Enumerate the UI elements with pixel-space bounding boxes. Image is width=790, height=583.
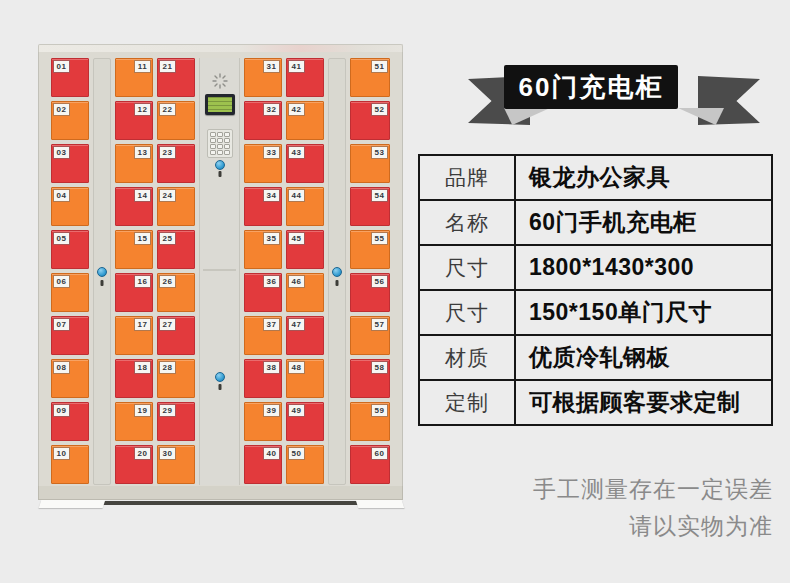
door-number-plate: 41	[289, 61, 304, 72]
door-number-plate: 26	[160, 276, 175, 287]
door-number-plate: 39	[264, 405, 279, 416]
door-number-plate: 05	[54, 233, 69, 244]
door-number-plate: 52	[372, 104, 387, 115]
spec-row-name: 名称 60门手机充电柜	[419, 200, 772, 245]
spec-value: 优质冷轧钢板	[515, 335, 772, 380]
keyhole-icon	[101, 280, 104, 286]
door-number-plate: 36	[264, 276, 279, 287]
locker-door-58: 58	[350, 359, 390, 398]
door-number-plate: 21	[160, 61, 175, 72]
locker-door-60: 60	[350, 445, 390, 484]
door-number-plate: 11	[135, 61, 150, 72]
control-panel	[199, 58, 240, 485]
keypad-key	[217, 132, 223, 137]
door-number-plate: 55	[372, 233, 387, 244]
spec-row-material: 材质 优质冷轧钢板	[419, 335, 772, 380]
locker-door-28: 28	[157, 359, 195, 398]
door-number-plate: 49	[289, 405, 304, 416]
locker-door-08: 08	[51, 359, 89, 398]
cabinet-underside	[38, 500, 403, 509]
door-number-plate: 29	[160, 405, 175, 416]
keypad-key	[224, 138, 230, 143]
spec-table: 品牌 银龙办公家具 名称 60门手机充电柜 尺寸 1800*1430*300 尺…	[418, 154, 773, 426]
locker-door-37: 37	[244, 316, 282, 355]
keypad-key	[217, 150, 223, 155]
lock-icon	[215, 372, 225, 382]
locker-door-27: 27	[157, 316, 195, 355]
spec-row-size: 尺寸 1800*1430*300	[419, 245, 772, 290]
locker-door-15: 15	[115, 230, 153, 269]
door-number-plate: 38	[264, 362, 279, 373]
locker-door-36: 36	[244, 273, 282, 312]
door-number-plate: 17	[135, 319, 150, 330]
locker-door-10: 10	[51, 445, 89, 484]
locker-door-44: 44	[286, 187, 324, 226]
door-number-plate: 51	[372, 61, 387, 72]
locker-door-11: 11	[115, 58, 153, 97]
locker-door-23: 23	[157, 144, 195, 183]
locker-door-33: 33	[244, 144, 282, 183]
door-number-plate: 59	[372, 405, 387, 416]
locker-door-57: 57	[350, 316, 390, 355]
cabinet-foot-right	[356, 500, 405, 508]
locker-door-14: 14	[115, 187, 153, 226]
locker-door-24: 24	[157, 187, 195, 226]
locker-door-02: 02	[51, 101, 89, 140]
door-number-plate: 19	[135, 405, 150, 416]
locker-column-5: 41424344454647484950	[286, 58, 324, 485]
door-number-plate: 10	[54, 448, 69, 459]
door-number-plate: 47	[289, 319, 304, 330]
locker-door-25: 25	[157, 230, 195, 269]
locker-door-32: 32	[244, 101, 282, 140]
lcd-screen	[208, 97, 232, 112]
door-number-plate: 31	[264, 61, 279, 72]
door-number-plate: 56	[372, 276, 387, 287]
door-number-plate: 40	[264, 448, 279, 459]
locker-door-30: 30	[157, 445, 195, 484]
keypad-key	[217, 138, 223, 143]
locker-door-50: 50	[286, 445, 324, 484]
locker-column-3: 21222324252627282930	[157, 58, 195, 485]
spec-label: 尺寸	[419, 245, 515, 290]
spec-value: 60门手机充电柜	[515, 200, 772, 245]
cabinet-body: 01020304050607080910 1112131415161718192…	[38, 52, 403, 486]
locker-door-35: 35	[244, 230, 282, 269]
locker-door-18: 18	[115, 359, 153, 398]
locker-door-13: 13	[115, 144, 153, 183]
locker-door-49: 49	[286, 402, 324, 441]
locker-door-31: 31	[244, 58, 282, 97]
door-number-plate: 22	[160, 104, 175, 115]
locker-column-1: 01020304050607080910	[51, 58, 89, 485]
door-number-plate: 53	[372, 147, 387, 158]
keyhole-icon	[336, 280, 339, 286]
locker-door-03: 03	[51, 144, 89, 183]
spec-label: 尺寸	[419, 290, 515, 335]
locker-door-38: 38	[244, 359, 282, 398]
spec-value: 银龙办公家具	[515, 155, 772, 200]
disclaimer: 手工测量存在一定误差 请以实物为准	[533, 471, 773, 545]
lock-icon	[215, 160, 225, 170]
door-number-plate: 12	[135, 104, 150, 115]
door-number-plate: 23	[160, 147, 175, 158]
locker-column-2: 11121314151617181920	[115, 58, 153, 485]
locker-door-34: 34	[244, 187, 282, 226]
locker-door-21: 21	[157, 58, 195, 97]
disclaimer-line-1: 手工测量存在一定误差	[533, 471, 773, 508]
locker-door-41: 41	[286, 58, 324, 97]
keypad-key	[217, 144, 223, 149]
keypad-key	[210, 132, 216, 137]
locker-door-59: 59	[350, 402, 390, 441]
lock-icon	[332, 267, 342, 277]
locker-door-53: 53	[350, 144, 390, 183]
locker-door-17: 17	[115, 316, 153, 355]
locker-door-09: 09	[51, 402, 89, 441]
locker-door-05: 05	[51, 230, 89, 269]
locker-door-43: 43	[286, 144, 324, 183]
keypad-key	[210, 138, 216, 143]
locker-column-6: 51525354555657585960	[350, 58, 390, 485]
locker-door-48: 48	[286, 359, 324, 398]
keypad-key	[210, 150, 216, 155]
title-ribbon: 60门充电柜	[468, 58, 760, 128]
spec-value: 150*150单门尺寸	[515, 290, 772, 335]
locker-column-4: 31323334353637383940	[244, 58, 282, 485]
door-number-plate: 08	[54, 362, 69, 373]
locker-door-39: 39	[244, 402, 282, 441]
lock-icon	[97, 267, 107, 277]
door-number-plate: 06	[54, 276, 69, 287]
door-number-plate: 18	[135, 362, 150, 373]
speaker-grille-icon	[211, 72, 229, 90]
lcd-display	[205, 94, 235, 115]
locker-door-45: 45	[286, 230, 324, 269]
door-number-plate: 30	[160, 448, 175, 459]
door-number-plate: 45	[289, 233, 304, 244]
door-number-plate: 46	[289, 276, 304, 287]
locker-door-40: 40	[244, 445, 282, 484]
door-number-plate: 35	[264, 233, 279, 244]
locker-door-47: 47	[286, 316, 324, 355]
divider-panel	[328, 58, 346, 485]
door-number-plate: 44	[289, 190, 304, 201]
locker-door-54: 54	[350, 187, 390, 226]
cabinet-top	[38, 44, 403, 52]
cabinet-shadow	[74, 501, 389, 505]
door-number-plate: 27	[160, 319, 175, 330]
locker-door-56: 56	[350, 273, 390, 312]
divider-panel	[93, 58, 111, 485]
locker-door-01: 01	[51, 58, 89, 97]
door-number-plate: 42	[289, 104, 304, 115]
door-number-plate: 13	[135, 147, 150, 158]
keypad-key	[224, 144, 230, 149]
locker-door-07: 07	[51, 316, 89, 355]
locker-door-46: 46	[286, 273, 324, 312]
locker-door-52: 52	[350, 101, 390, 140]
door-number-plate: 58	[372, 362, 387, 373]
locker-door-55: 55	[350, 230, 390, 269]
locker-door-04: 04	[51, 187, 89, 226]
door-number-plate: 16	[135, 276, 150, 287]
door-number-plate: 48	[289, 362, 304, 373]
cabinet-foot-left	[39, 500, 106, 508]
locker-door-06: 06	[51, 273, 89, 312]
spec-label: 定制	[419, 380, 515, 425]
door-number-plate: 25	[160, 233, 175, 244]
panel-seam	[203, 269, 236, 271]
door-number-plate: 24	[160, 190, 175, 201]
door-number-plate: 14	[135, 190, 150, 201]
disclaimer-line-2: 请以实物为准	[533, 508, 773, 545]
locker-door-51: 51	[350, 58, 390, 97]
locker-door-12: 12	[115, 101, 153, 140]
door-number-plate: 54	[372, 190, 387, 201]
door-number-plate: 02	[54, 104, 69, 115]
locker-door-42: 42	[286, 101, 324, 140]
door-number-plate: 09	[54, 405, 69, 416]
door-number-plate: 15	[135, 233, 150, 244]
locker-door-19: 19	[115, 402, 153, 441]
door-number-plate: 37	[264, 319, 279, 330]
door-number-plate: 28	[160, 362, 175, 373]
door-number-plate: 33	[264, 147, 279, 158]
door-number-plate: 20	[135, 448, 150, 459]
keypad	[207, 129, 233, 158]
door-number-plate: 57	[372, 319, 387, 330]
product-detail-image: 01020304050607080910 1112131415161718192…	[0, 0, 790, 583]
door-number-plate: 01	[54, 61, 69, 72]
locker-door-29: 29	[157, 402, 195, 441]
door-number-plate: 32	[264, 104, 279, 115]
spec-row-brand: 品牌 银龙办公家具	[419, 155, 772, 200]
charging-cabinet-photo: 01020304050607080910 1112131415161718192…	[38, 44, 403, 506]
door-number-plate: 03	[54, 147, 69, 158]
product-title: 60门充电柜	[519, 70, 664, 105]
locker-door-16: 16	[115, 273, 153, 312]
spec-label: 品牌	[419, 155, 515, 200]
keypad-key	[224, 132, 230, 137]
spec-row-door-size: 尺寸 150*150单门尺寸	[419, 290, 772, 335]
spec-row-custom: 定制 可根据顾客要求定制	[419, 380, 772, 425]
cabinet-base	[38, 486, 403, 500]
locker-door-20: 20	[115, 445, 153, 484]
door-number-plate: 50	[289, 448, 304, 459]
door-number-plate: 04	[54, 190, 69, 201]
keyhole-icon	[218, 384, 221, 390]
keyhole-icon	[218, 171, 221, 177]
door-number-plate: 07	[54, 319, 69, 330]
keypad-key	[210, 144, 216, 149]
spec-label: 材质	[419, 335, 515, 380]
spec-value: 1800*1430*300	[515, 245, 772, 290]
door-number-plate: 34	[264, 190, 279, 201]
locker-door-26: 26	[157, 273, 195, 312]
spec-label: 名称	[419, 200, 515, 245]
door-number-plate: 43	[289, 147, 304, 158]
keypad-key	[224, 150, 230, 155]
locker-door-22: 22	[157, 101, 195, 140]
spec-value: 可根据顾客要求定制	[515, 380, 772, 425]
door-number-plate: 60	[372, 448, 387, 459]
ribbon-title-box: 60门充电柜	[504, 65, 678, 109]
